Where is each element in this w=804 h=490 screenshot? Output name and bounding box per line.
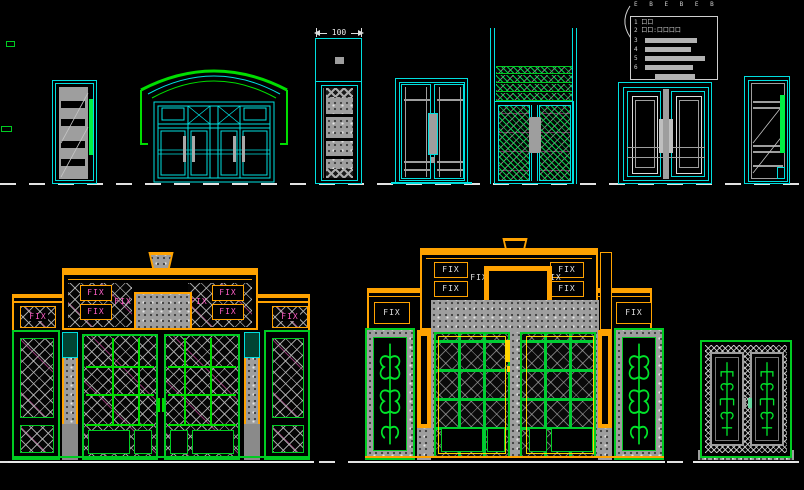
- dimension-arrow-right-icon: [358, 30, 364, 36]
- wing-band-line: [258, 301, 310, 303]
- door-handle: [742, 398, 746, 408]
- pilaster-flute: [602, 336, 608, 424]
- hatched-door-jamb: [576, 28, 577, 184]
- fix-panel: FIX: [434, 281, 468, 297]
- muntin: [168, 424, 236, 426]
- bottom-panel: [88, 430, 130, 454]
- legend-header-marks: E B E B E B: [634, 1, 718, 8]
- plot-mark: [6, 41, 15, 47]
- wing-edge: [367, 288, 369, 330]
- candelabra-ornament: [756, 359, 778, 439]
- center-handle: [428, 113, 438, 155]
- single-door-elevation: [52, 80, 97, 184]
- fix-panel-label: FIX: [280, 313, 299, 321]
- door-leaf: [627, 91, 661, 177]
- bottom-panel: [529, 428, 547, 452]
- muntin: [86, 424, 154, 426]
- center-handle: [669, 119, 673, 153]
- mullion-column-elevation: [315, 38, 362, 184]
- fix-panel-label: FIX: [219, 289, 236, 297]
- column-lower-frame: [321, 85, 358, 181]
- rail-line: [437, 161, 463, 163]
- wing-band: [367, 288, 420, 293]
- storefront-base-line: [12, 456, 310, 458]
- rail-line: [404, 99, 430, 101]
- fix-panel: FIX: [20, 306, 56, 328]
- hatch-pane: [20, 338, 54, 418]
- door-sill-line: [391, 182, 472, 184]
- side-glazed-panel: [12, 330, 60, 460]
- pilaster-capital: [244, 332, 260, 358]
- column-divider: [316, 81, 361, 82]
- cad-drawing-canvas[interactable]: 100: [0, 0, 804, 490]
- bottom-panel: [441, 428, 483, 452]
- muntin: [168, 366, 236, 368]
- door-leaf: [401, 84, 431, 179]
- fix-panel-label: FIX: [114, 298, 131, 306]
- legend-row-bar: [645, 65, 693, 70]
- column-hatch-top: [326, 88, 353, 97]
- wing-band: [258, 294, 310, 298]
- fix-panel-label: FIX: [28, 313, 47, 321]
- door-handle: [506, 340, 510, 362]
- kick-plate: [777, 167, 785, 179]
- pilaster-capital: [62, 332, 78, 358]
- dimension-arrow-left-icon: [314, 30, 320, 36]
- transom-strip: [496, 66, 572, 74]
- fix-panel-label: FIX: [442, 266, 459, 274]
- ornament-side-panel: [614, 328, 664, 460]
- center-handle: [529, 117, 541, 153]
- door-center-gap: [510, 332, 520, 458]
- bottom-panel: [487, 428, 505, 452]
- rail-line: [437, 169, 463, 171]
- muntin: [210, 338, 212, 424]
- fix-label-floating: FIX: [110, 296, 136, 308]
- legend-footer-bar: [655, 74, 695, 80]
- scroll-ornament: [624, 340, 654, 448]
- legend-row-bar: [645, 38, 697, 43]
- muntin: [112, 338, 114, 424]
- fix-panel-label: FIX: [625, 309, 642, 317]
- fix-panel: FIX: [80, 285, 112, 301]
- wing-edge: [308, 294, 310, 330]
- door-leaf-ornate: [82, 334, 158, 460]
- bottom-panel: [551, 428, 593, 452]
- fix-panel-label: FIX: [558, 285, 575, 293]
- fix-panel: FIX: [272, 306, 308, 328]
- center-handle: [659, 119, 663, 153]
- rail-line: [437, 99, 463, 101]
- wing-band: [12, 294, 62, 298]
- hatch-pane: [272, 425, 304, 453]
- legend-row-text: 4: [634, 46, 638, 53]
- wing-edge: [12, 294, 14, 330]
- side-glazed-panel: [264, 330, 310, 460]
- fix-panel: FIX: [434, 262, 468, 278]
- rail-line: [404, 161, 430, 163]
- door-leaf: [498, 105, 530, 181]
- pilaster: [598, 330, 612, 460]
- column-edge-line: [323, 88, 324, 178]
- fix-panel-label: FIX: [442, 285, 459, 293]
- rail-line: [404, 169, 430, 171]
- door-handle: [157, 398, 160, 412]
- transom-strip: [496, 84, 572, 92]
- column-top-block: [335, 57, 344, 64]
- bottom-panel: [134, 430, 152, 454]
- fix-panel: FIX: [80, 304, 112, 320]
- column-rail: [326, 114, 353, 117]
- header-top-band: [64, 270, 256, 275]
- fix-panel: FIX: [616, 302, 652, 324]
- legend-row-text: 1 口口: [634, 19, 653, 26]
- fix-panel-label: FIX: [219, 308, 236, 316]
- pilaster-flute: [421, 336, 427, 424]
- door-leaf: [750, 352, 784, 446]
- header-line: [68, 279, 252, 280]
- legend-row-bar: [645, 47, 691, 52]
- single-door-swing-elevation: [744, 76, 790, 184]
- door-leaf-ornate: [434, 332, 510, 458]
- muntin: [168, 394, 236, 396]
- fix-panel: FIX: [212, 304, 244, 320]
- legend-row-text: 6: [634, 64, 638, 71]
- door-leaf: [710, 352, 744, 446]
- muntin: [86, 394, 154, 396]
- legend-row-text: 2 口口:口口口口: [634, 27, 681, 34]
- legend-row-bar: [645, 56, 705, 61]
- pilaster: [417, 330, 431, 460]
- column-rail: [326, 156, 353, 159]
- column-core: [326, 88, 353, 178]
- ground-line: [693, 461, 795, 463]
- door-leaf: [434, 84, 464, 179]
- fix-panel-label: FIX: [383, 309, 400, 317]
- handle-notch: [431, 157, 435, 163]
- transom-strip: [496, 93, 572, 101]
- ornament-side-panel: [365, 328, 415, 460]
- arched-double-door-elevation: [135, 44, 293, 184]
- entrance-header-center: FIX FIX FIX FIX FIX FIX: [62, 268, 258, 330]
- plot-mark: [1, 126, 12, 132]
- fix-panel-label: FIX: [87, 289, 104, 297]
- ground-line: [8, 461, 314, 463]
- fix-panel-label: FIX: [87, 308, 104, 316]
- pilaster-base: [62, 424, 78, 460]
- legend-row-text: 5: [634, 55, 638, 62]
- door-leaf: [539, 105, 571, 181]
- candelabra-ornament: [716, 359, 738, 439]
- handle-knob: [507, 366, 510, 372]
- muntin: [86, 366, 154, 368]
- dimension-label: 100: [327, 27, 351, 38]
- material-legend-table: 1 口口 2 口口:口口口口 3 4 5 6: [630, 16, 718, 80]
- hinge-strip: [89, 99, 93, 155]
- muntin: [184, 338, 186, 424]
- scroll-ornament: [375, 340, 405, 448]
- column-hatch-bottom: [326, 169, 353, 178]
- fix-panel: FIX: [374, 302, 410, 324]
- header-center-block: [134, 292, 192, 330]
- door-handle: [748, 398, 752, 408]
- fix-panel-label: FIX: [190, 298, 207, 306]
- door-leaf-ornate: [164, 334, 240, 460]
- bottom-panel: [192, 430, 234, 454]
- glazed-double-door-elevation: [618, 82, 712, 184]
- transom-strip: [496, 75, 572, 83]
- double-door-elevation: [395, 78, 468, 184]
- fix-panel: FIX: [212, 285, 244, 301]
- pilaster-base: [244, 424, 260, 460]
- storefront-base-line: [365, 456, 664, 458]
- hatched-double-door-elevation: [494, 101, 574, 184]
- door-leaf: [671, 91, 705, 177]
- ground-line: [360, 461, 665, 463]
- hatch-pane: [272, 338, 304, 418]
- column-rail: [326, 138, 353, 141]
- ornate-double-door-elevation: [700, 340, 792, 458]
- header-line: [426, 258, 592, 259]
- hatch-pane: [20, 425, 54, 453]
- header-side-column: [600, 252, 612, 330]
- bottom-panel: [170, 430, 188, 454]
- hatched-door-jamb: [490, 28, 491, 184]
- wing-band-line: [367, 296, 420, 297]
- door-leaf-ornate: [520, 332, 596, 458]
- legend-row-text: 3: [634, 37, 638, 44]
- wing-band-line: [12, 301, 62, 303]
- muntin: [138, 338, 140, 424]
- header-top-band: [422, 250, 596, 255]
- hinge-strip: [780, 95, 785, 153]
